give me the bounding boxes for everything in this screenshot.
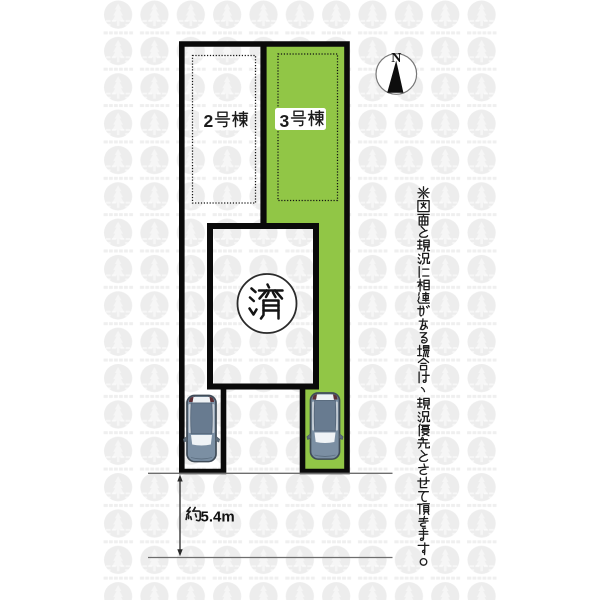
svg-text:2: 2 xyxy=(204,111,214,131)
svg-text:5.4m: 5.4m xyxy=(201,509,235,526)
svg-text:3: 3 xyxy=(280,111,290,131)
